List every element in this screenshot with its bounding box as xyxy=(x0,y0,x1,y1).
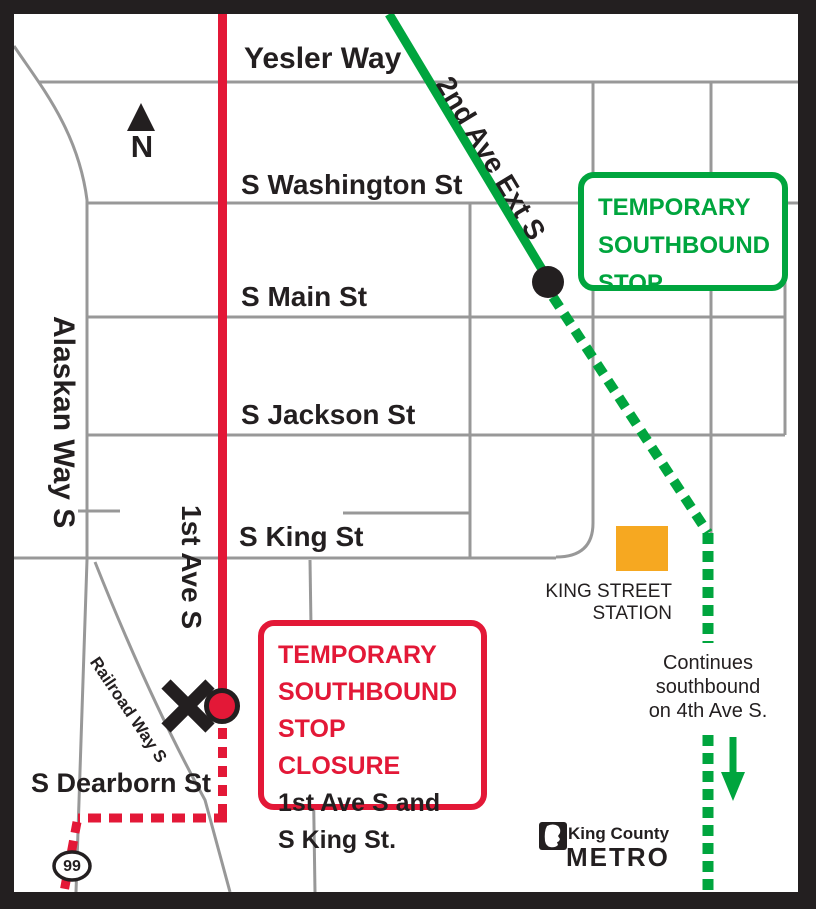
temporary-stop-dot xyxy=(532,266,564,298)
street-label-s-dearborn-st: S Dearborn St xyxy=(31,770,211,797)
red-callout-warn-3: STOP CLOSURE xyxy=(278,711,467,785)
highway-99-number: 99 xyxy=(55,858,89,876)
green-route-dashed-diagonal xyxy=(553,297,708,533)
street-label-alaskan-way-s: Alaskan Way S xyxy=(48,316,78,528)
king-county-logo-icon xyxy=(539,822,567,850)
logo-brand-text: METRO xyxy=(566,842,670,873)
continues-line-1: Continues xyxy=(638,651,778,675)
temporary-southbound-stop-callout: TEMPORARY SOUTHBOUND STOP xyxy=(578,172,788,291)
street-label-1st-ave-s: 1st Ave S xyxy=(177,505,205,629)
red-callout-warn-1: TEMPORARY xyxy=(278,637,467,674)
green-callout-line-2: SOUTHBOUND xyxy=(598,227,768,265)
closure-marker xyxy=(166,684,238,728)
logo-agency-text: King County xyxy=(568,824,669,844)
station-label-line-2: STATION xyxy=(538,603,672,625)
street-label-s-washington-st: S Washington St xyxy=(241,171,462,199)
king-street-station-label: KING STREET STATION xyxy=(538,581,672,625)
road-vertical-3 xyxy=(556,82,593,557)
station-label-line-1: KING STREET xyxy=(538,581,672,603)
king-street-station-square xyxy=(616,526,668,571)
closed-stop-dot xyxy=(207,691,238,722)
continues-line-2: southbound xyxy=(638,675,778,699)
stop-closure-callout: TEMPORARY SOUTHBOUND STOP CLOSURE 1st Av… xyxy=(258,620,487,810)
transit-closure-map: Yesler Way S Washington St S Main St S J… xyxy=(0,0,816,909)
continues-southbound-note: Continues southbound on 4th Ave S. xyxy=(638,651,778,723)
street-label-s-king-st: S King St xyxy=(239,523,363,551)
southbound-arrow-head xyxy=(721,772,745,801)
closure-x-icon xyxy=(166,684,210,728)
street-label-s-jackson-st: S Jackson St xyxy=(241,401,415,429)
red-callout-location-1: 1st Ave S and xyxy=(278,785,467,822)
north-label: N xyxy=(127,129,157,165)
continues-line-3: on 4th Ave S. xyxy=(638,699,778,723)
green-callout-line-1: TEMPORARY xyxy=(598,189,768,227)
street-label-s-main-st: S Main St xyxy=(241,283,367,311)
north-arrow-icon xyxy=(127,103,155,131)
street-label-yesler-way: Yesler Way xyxy=(244,44,401,74)
red-callout-warn-2: SOUTHBOUND xyxy=(278,674,467,711)
red-callout-location-2: S King St. xyxy=(278,822,467,859)
green-callout-line-3: STOP xyxy=(598,265,768,303)
